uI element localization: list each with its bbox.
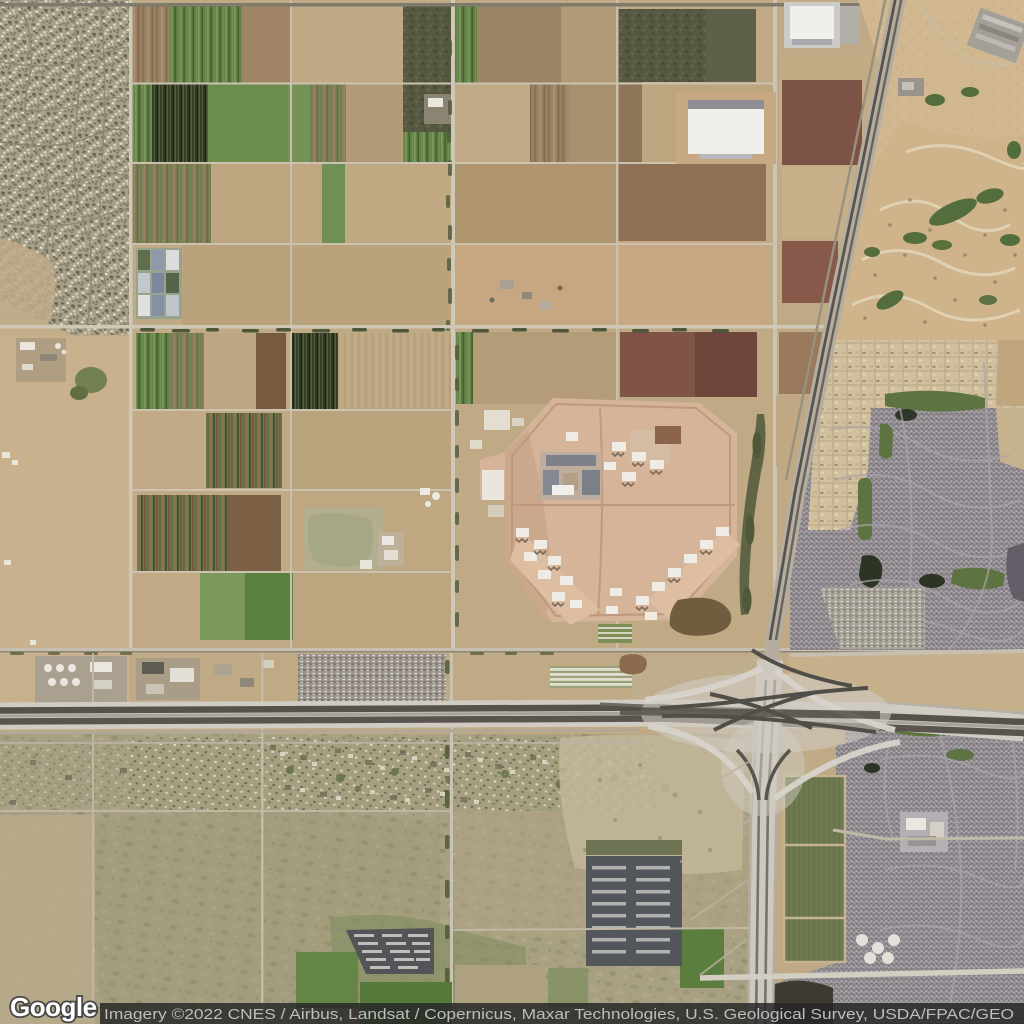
svg-text:Imagery ©2022 CNES / Airbus, L: Imagery ©2022 CNES / Airbus, Landsat / C… xyxy=(104,1006,1014,1023)
svg-text:Google: Google xyxy=(10,992,97,1022)
